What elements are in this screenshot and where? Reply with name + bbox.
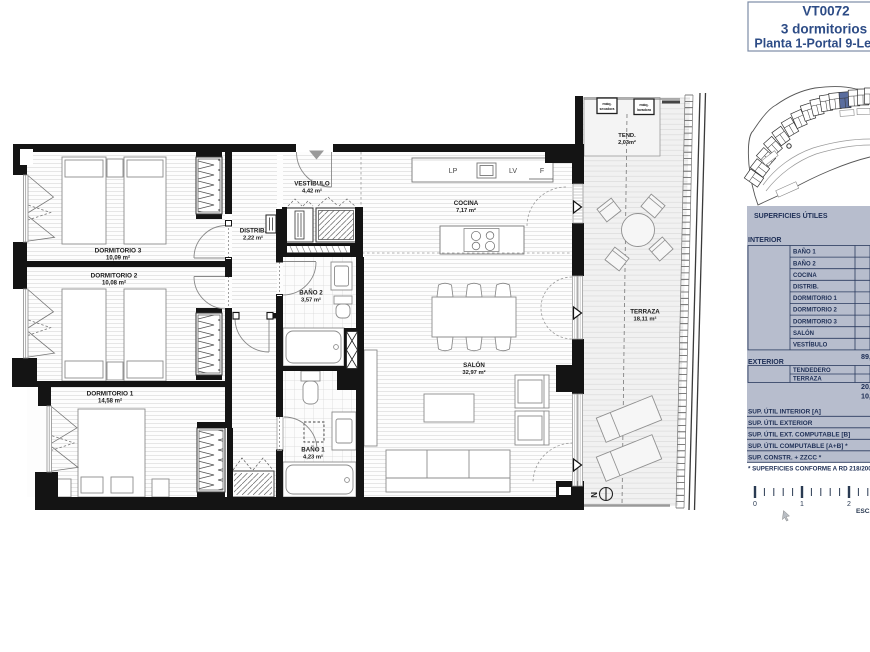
svg-text:Planta 1-Portal 9-Letra B: Planta 1-Portal 9-Letra B [754, 37, 870, 51]
svg-text:COCINA: COCINA [454, 200, 479, 207]
svg-text:DISTRIB.: DISTRIB. [793, 285, 819, 291]
svg-text:SALÓN: SALÓN [793, 329, 814, 337]
svg-text:3,57 m²: 3,57 m² [301, 297, 321, 304]
svg-text:* SUPERFICIES CONFORME A RD 21: * SUPERFICIES CONFORME A RD 218/2005 [748, 466, 870, 473]
svg-text:TERRAZA: TERRAZA [793, 377, 822, 383]
svg-text:DORMITORIO 2: DORMITORIO 2 [91, 273, 138, 280]
svg-text:3 dormitorios: 3 dormitorios [781, 22, 867, 37]
svg-text:0: 0 [753, 501, 757, 508]
svg-text:20,14: 20,14 [861, 382, 870, 391]
svg-text:32,97 m²: 32,97 m² [462, 369, 485, 376]
svg-text:DORMITORIO 3: DORMITORIO 3 [95, 248, 142, 255]
svg-text:SUPERFICIES ÚTILES: SUPERFICIES ÚTILES [754, 211, 828, 220]
svg-text:DISTRIB.: DISTRIB. [240, 228, 267, 235]
svg-text:SUP. ÚTIL EXT. COMPUTABLE [B]: SUP. ÚTIL EXT. COMPUTABLE [B] [748, 430, 850, 439]
svg-text:14,58 m²: 14,58 m² [98, 398, 122, 405]
svg-text:EXTERIOR: EXTERIOR [748, 359, 784, 366]
svg-text:2,03m²: 2,03m² [618, 139, 636, 146]
svg-text:DORMITORIO 3: DORMITORIO 3 [793, 319, 838, 325]
svg-text:18,11 m²: 18,11 m² [634, 316, 657, 323]
svg-text:10,09 m²: 10,09 m² [106, 255, 130, 262]
svg-text:secadora: secadora [600, 107, 615, 111]
svg-text:1: 1 [800, 501, 804, 508]
svg-text:LV: LV [509, 168, 517, 175]
svg-text:SUP. ÚTIL EXTERIOR: SUP. ÚTIL EXTERIOR [748, 418, 813, 427]
svg-text:LP: LP [449, 168, 458, 175]
svg-text:TEND.: TEND. [618, 133, 636, 139]
svg-text:4,23 m²: 4,23 m² [303, 454, 323, 461]
svg-text:ESCALA 1:100: ESCALA 1:100 [856, 508, 870, 515]
svg-text:4,42 m²: 4,42 m² [302, 188, 322, 195]
svg-text:BAÑO 2: BAÑO 2 [299, 290, 323, 297]
svg-text:TENDEDERO: TENDEDERO [793, 368, 831, 374]
svg-text:F: F [540, 168, 544, 175]
svg-text:BAÑO 1: BAÑO 1 [301, 447, 325, 454]
svg-text:10,07: 10,07 [861, 392, 870, 401]
svg-text:TERRAZA: TERRAZA [630, 309, 660, 316]
svg-text:2: 2 [847, 501, 851, 508]
svg-text:DORMITORIO 1: DORMITORIO 1 [793, 296, 838, 302]
svg-text:2,22 m²: 2,22 m² [243, 235, 263, 242]
svg-text:VT0072: VT0072 [802, 4, 849, 19]
svg-text:SUP. ÚTIL COMPUTABLE [A+B] *: SUP. ÚTIL COMPUTABLE [A+B] * [748, 441, 848, 450]
svg-text:7,17 m²: 7,17 m² [456, 207, 476, 214]
svg-text:máq.: máq. [602, 101, 611, 106]
svg-text:SALÓN: SALÓN [463, 361, 485, 369]
svg-text:DORMITORIO 2: DORMITORIO 2 [793, 308, 838, 314]
svg-text:DORMITORIO 1: DORMITORIO 1 [87, 391, 134, 398]
svg-text:máq.: máq. [639, 102, 648, 107]
svg-text:BAÑO 2: BAÑO 2 [793, 260, 816, 267]
svg-text:N: N [589, 492, 598, 498]
svg-text:89,11: 89,11 [861, 352, 870, 361]
svg-text:COCINA: COCINA [793, 273, 817, 279]
svg-text:lavadora: lavadora [637, 108, 651, 112]
svg-text:VESTÍBULO: VESTÍBULO [793, 341, 828, 349]
svg-text:SUP. CONSTR. + ZZCC *: SUP. CONSTR. + ZZCC * [748, 455, 822, 462]
svg-text:10,08 m²: 10,08 m² [102, 280, 126, 287]
svg-text:BAÑO 1: BAÑO 1 [793, 249, 816, 256]
svg-text:INTERIOR: INTERIOR [748, 237, 781, 244]
svg-text:SUP. ÚTIL INTERIOR [A]: SUP. ÚTIL INTERIOR [A] [748, 407, 821, 416]
